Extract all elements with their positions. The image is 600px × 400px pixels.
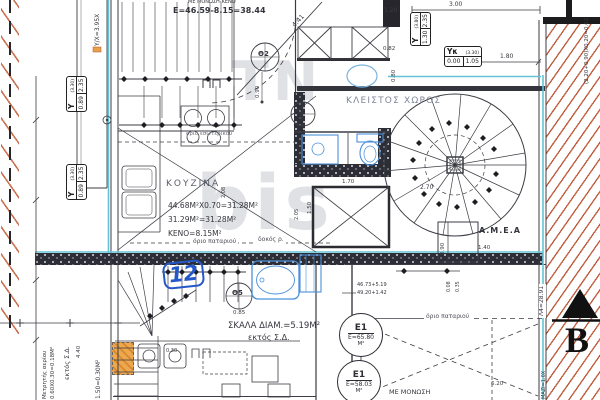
kitchen-void-calc: ΚΕΝΟ=8.15M² (168, 230, 222, 238)
dim-0-35: 0.35 (456, 281, 461, 292)
bathtub (252, 255, 321, 299)
door-tag-circles (226, 43, 315, 309)
level-box-yk: Yκ(3.30) 0.001.05 (444, 46, 482, 67)
dim-0-90-b: 0.90 (440, 243, 446, 255)
area-calc-top: Ε=46.59-8.15=38.44 (173, 7, 266, 16)
column-calc: 1.50=0.30M² (96, 360, 103, 399)
section-letter: B (565, 322, 589, 358)
outside-building-label-2: εκτός Σ.Δ. (64, 346, 71, 380)
area-tag-e1-upper: Ε1 Ε=65.80 Μ² (339, 313, 383, 357)
dim-1-70: 1.70 (342, 179, 354, 185)
gas-meter-calc: 0.60X0.30=0.18M² (50, 347, 56, 399)
level-box-y-left-1: Y(3.30) 0.892.35 (66, 76, 87, 112)
beam-note: δοκός ρ. (256, 237, 286, 244)
dim-1-80: 1.80 (500, 54, 513, 61)
ceiling-opening (347, 65, 377, 87)
insulation-note-top: ΜΕ ΜΟΝΩΣΗ-ΚΕΝΟ (188, 0, 236, 6)
right-wall-calc: (2.20+0.90)Χ0.20=0.62 (584, 18, 590, 84)
light-shaft (313, 187, 389, 247)
gas-meter-note: Μετρητής αερίου (42, 351, 48, 399)
dim-4-40: 4.40 (76, 346, 82, 358)
dim-0-90-a: 0.90 (255, 86, 261, 98)
level-box-y-left-2: Y(3.30) 0.892.35 (66, 164, 87, 200)
revision-mark: 12 (162, 259, 206, 290)
sum-calc-2: 49.20+1.42 (357, 291, 387, 297)
closed-space-label: ΚΛΕΙΣΤΟΣ ΧΩΡΟΣ (346, 97, 441, 107)
door-tag-theta2: Θ2 (258, 51, 269, 59)
area-tag-e1-lower: Ε1 Ε=58.03 Μ² (337, 360, 381, 400)
toilet (357, 134, 383, 165)
insulation-note-bottom: ΜΕ ΜΟΝΩΣΗ (389, 389, 430, 396)
dim-0-30: 0.30 (166, 349, 177, 355)
upper-staircase (118, 0, 242, 131)
skylight-band (298, 27, 388, 59)
dim-1-40: 1.40 (478, 245, 490, 251)
dim-0-82: 0.82 (383, 46, 395, 52)
floor-plan: TN bis (0, 0, 600, 400)
kitchen-label: ΚΟΥΖΙΝΑ (166, 180, 220, 190)
dim-0-08: 0.08 (447, 281, 452, 292)
right-wall-small-note: ΜΑΖΙ=1.0Χ (542, 371, 548, 399)
dim-6-20: 6.20 (491, 381, 503, 387)
section-triangle (552, 289, 600, 321)
door-tag-theta5: Θ5 (232, 290, 243, 298)
dim-1-50: 1.50 (307, 202, 313, 214)
dim-2-70: 2.70 (420, 185, 433, 192)
outside-building-label-1: εκτός Σ.Δ. (248, 334, 290, 343)
bottom-rooms (115, 319, 543, 400)
dim-2-08: 2.08 (222, 187, 228, 198)
amea-label: Α.Μ.Ε.Α (479, 227, 521, 236)
right-wall-length: Λ4=28.91 (539, 284, 546, 318)
stair-area-label: ΣΚΑΛΑ ΔΙΑΜ.=5.19M² (228, 322, 320, 331)
kitchen-calc-2: 31.29M²=31.28M² (168, 216, 236, 224)
dim-0-80: 0.80 (391, 70, 397, 82)
kitchen-calc-1: 44.68M²X0.70=31.28M² (168, 202, 258, 210)
inner-boundary-label: όριο εσωτερικού (186, 131, 232, 137)
left-wall-calc: Υ/Χ=3.95Χ (95, 14, 102, 46)
loft-boundary-label-1: όριο παταριού (191, 239, 238, 246)
dim-1-20: 1.20 (384, 8, 397, 15)
bathroom (302, 133, 383, 165)
shower (302, 135, 338, 164)
dim-0-85: 0.85 (233, 310, 245, 316)
loft-boundary-label-2: όριο παταριού (424, 314, 471, 321)
door-tag-theta4: Θ4 (299, 111, 306, 121)
dim-2-05: 2.05 (295, 209, 301, 220)
level-box-y-right: Y(3.80) 1.302.35 (410, 12, 431, 46)
sum-calc-1: 46.73+5.19 (357, 283, 387, 289)
spiral-staircase (384, 94, 526, 236)
dim-3-00: 3.00 (449, 2, 462, 9)
